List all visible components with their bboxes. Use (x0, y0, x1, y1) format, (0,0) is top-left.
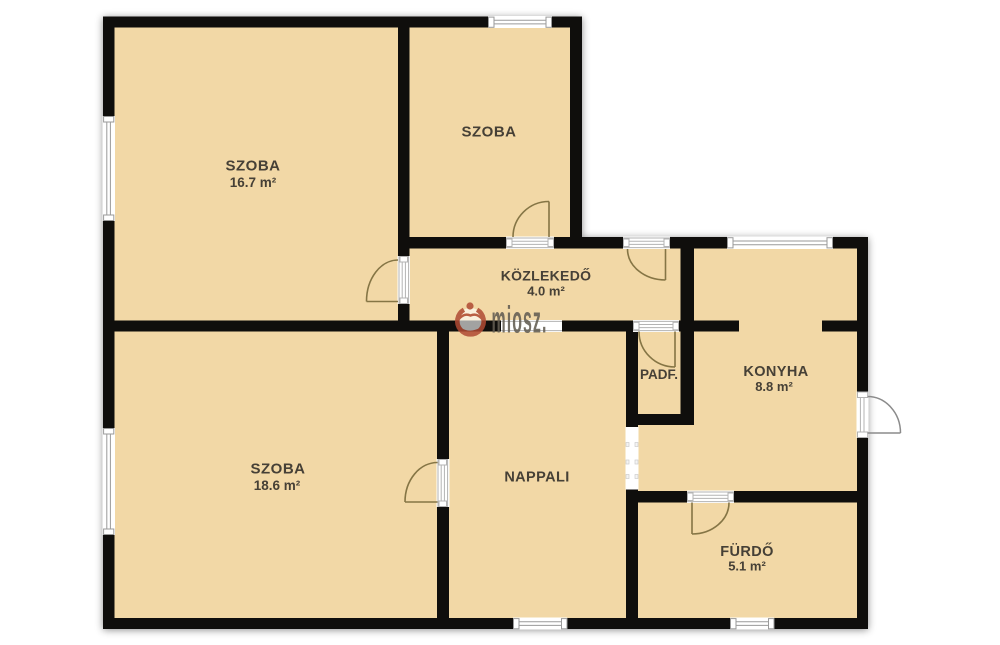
svg-text:4.0 m²: 4.0 m² (527, 284, 565, 299)
svg-text:SZOBA: SZOBA (462, 124, 517, 141)
svg-text:FÜRDŐ: FÜRDŐ (720, 542, 774, 560)
svg-text:miosz.: miosz. (492, 300, 548, 342)
svg-text:PADF.: PADF. (640, 367, 678, 382)
svg-text:5.1 m²: 5.1 m² (728, 559, 766, 574)
svg-text:NAPPALI: NAPPALI (504, 470, 569, 486)
svg-text:16.7 m²: 16.7 m² (230, 175, 277, 190)
svg-text:SZOBA: SZOBA (226, 158, 281, 175)
svg-text:SZOBA: SZOBA (251, 461, 306, 478)
svg-text:8.8 m²: 8.8 m² (755, 379, 793, 394)
svg-text:18.6 m²: 18.6 m² (254, 478, 301, 493)
svg-text:KONYHA: KONYHA (743, 364, 808, 380)
svg-text:KÖZLEKEDŐ: KÖZLEKEDŐ (501, 267, 592, 284)
